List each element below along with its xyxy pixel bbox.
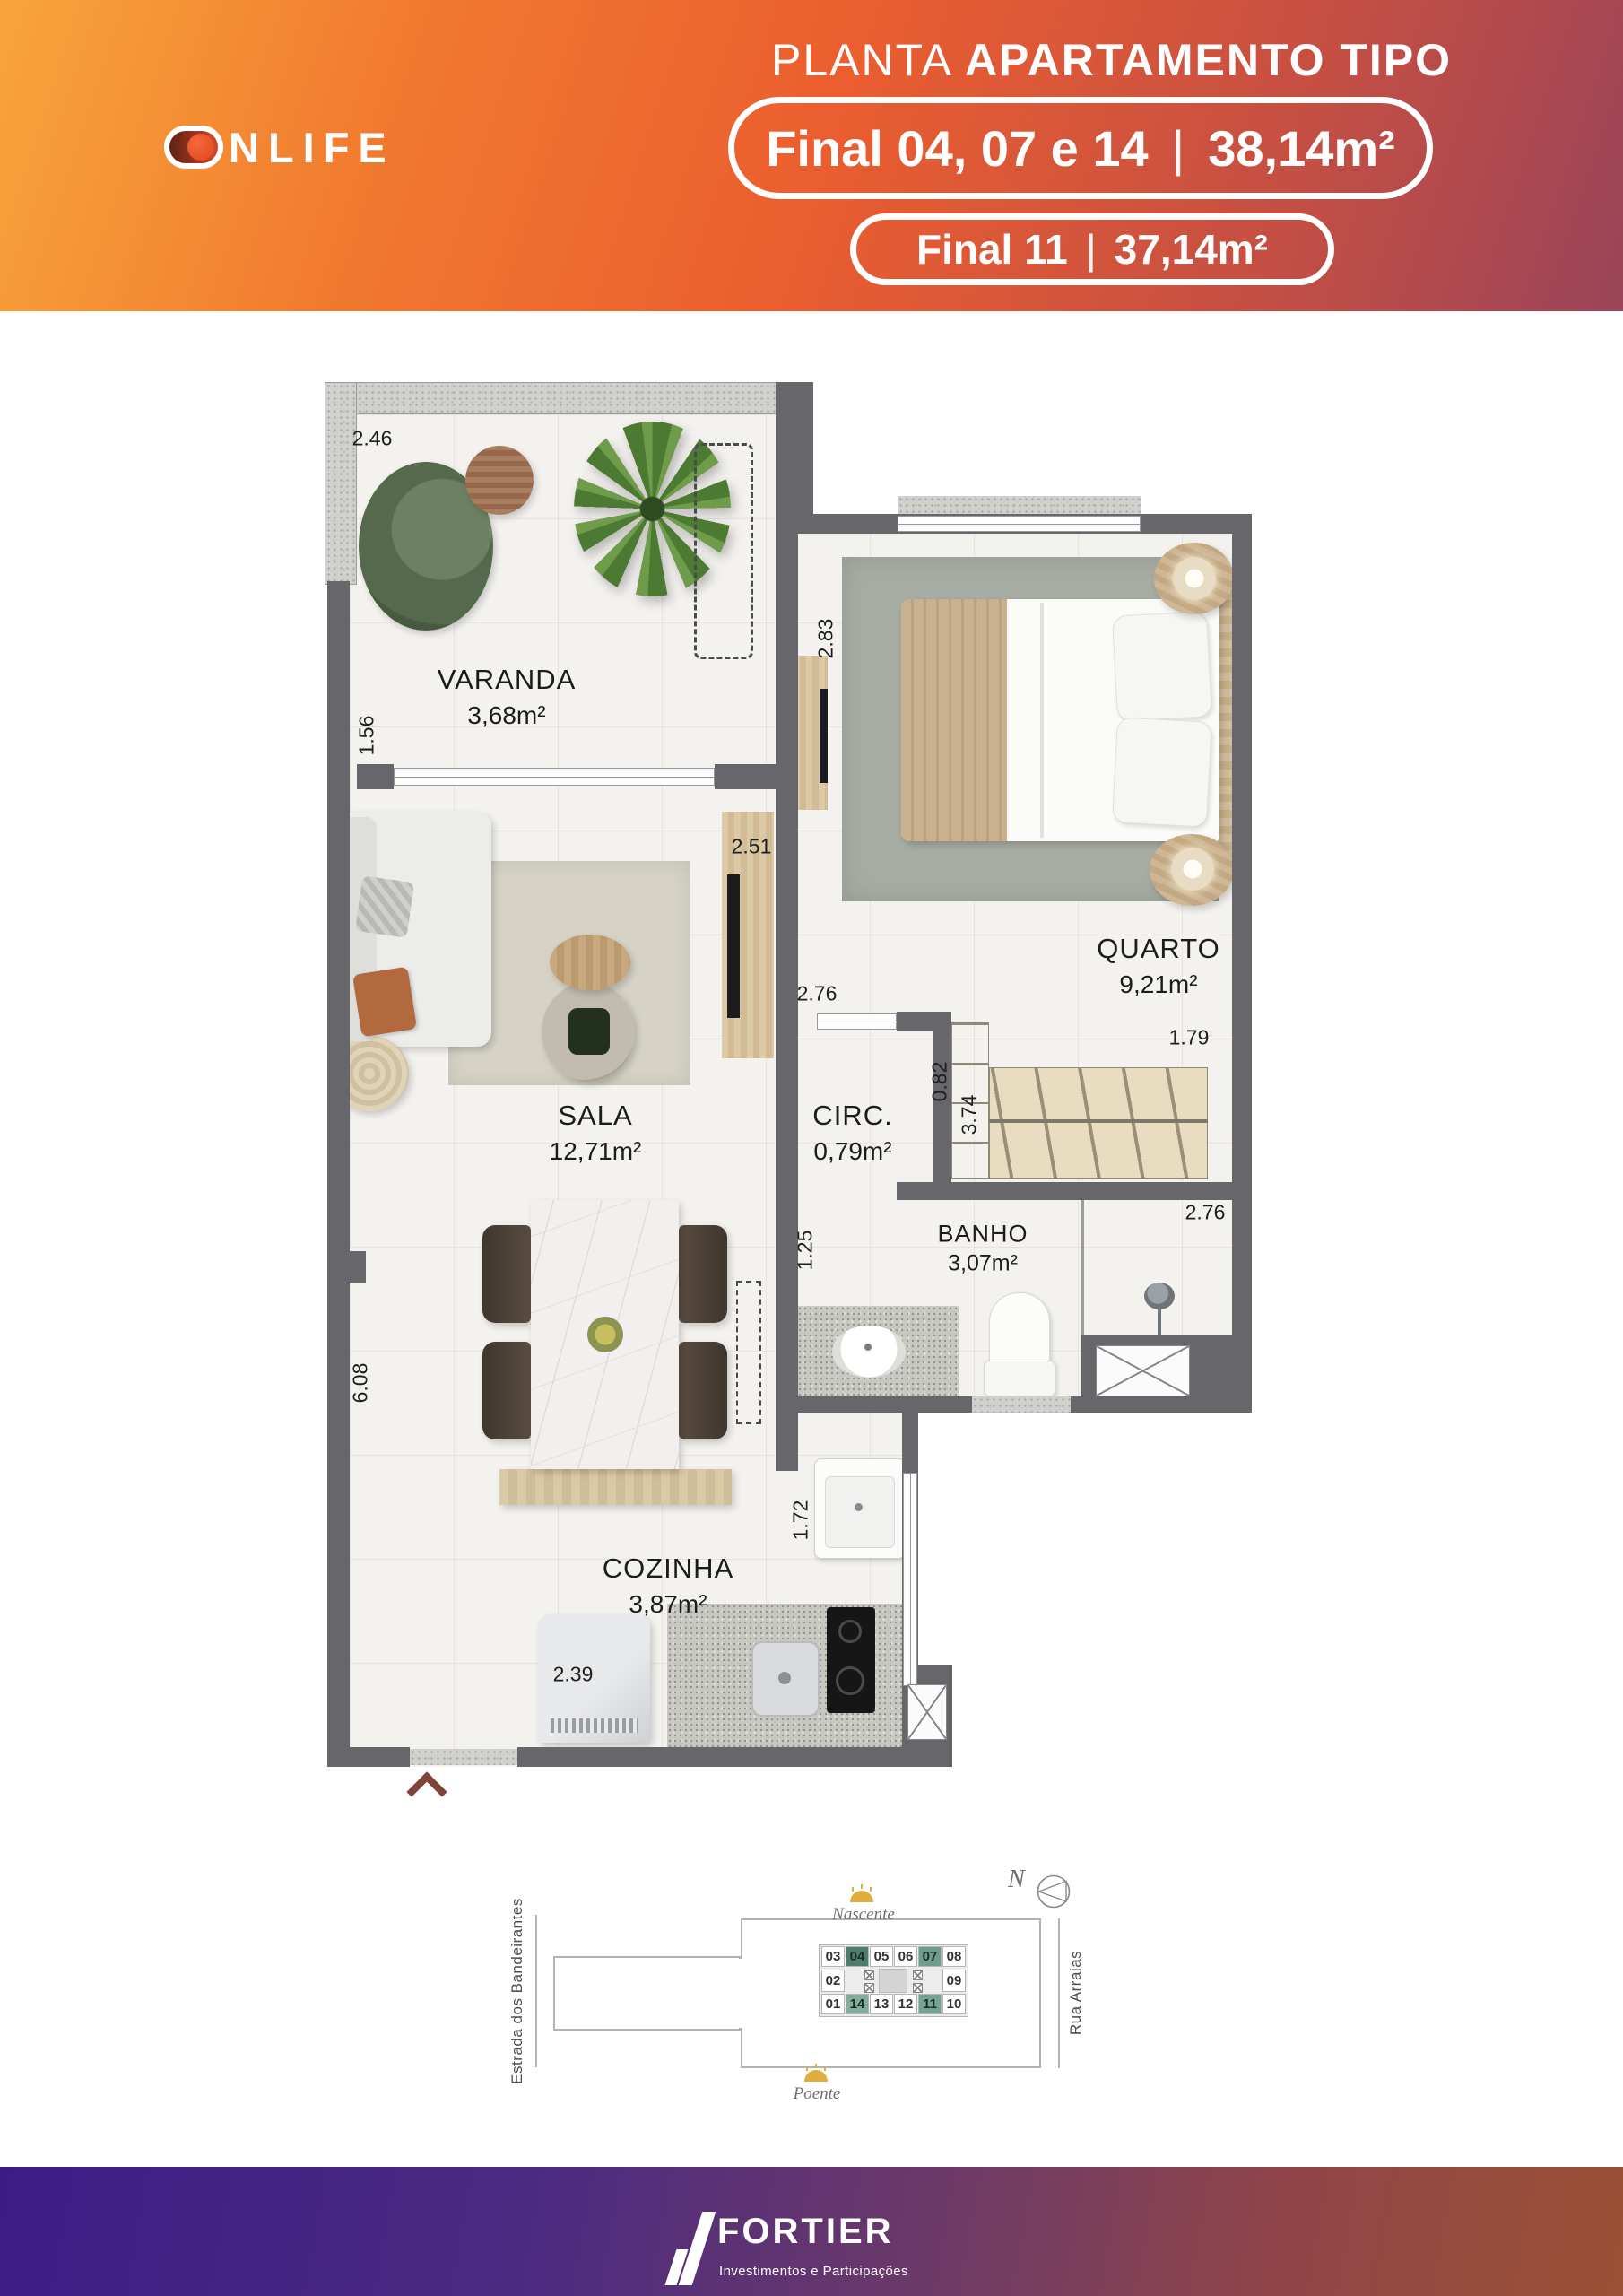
wall-wardrobe-left: [933, 1030, 951, 1184]
sun-icon-poente: [804, 2070, 828, 2082]
wall-banho-top: [897, 1182, 1252, 1200]
street-label-left: Estrada dos Bandeirantes: [508, 1898, 526, 2084]
compass-icon: [1035, 1873, 1072, 1910]
shower-head-stem: [1158, 1308, 1161, 1335]
varanda-parapet-top: [325, 382, 813, 414]
quarto-tv: [820, 689, 828, 783]
title-bold: APARTAMENTO TIPO: [965, 35, 1452, 85]
onlife-logo: NLIFE: [164, 122, 395, 172]
title-regular: PLANTA: [771, 35, 950, 85]
shower-head-icon: [1144, 1283, 1175, 1309]
unit-10: 10: [942, 1994, 966, 2014]
unit-01: 01: [821, 1994, 845, 2014]
dim-closet-height: 3.74: [958, 1095, 982, 1135]
dim-quarto-height: 2.83: [814, 619, 838, 659]
footer-banner: FORTIER Investimentos e Participações: [0, 2167, 1623, 2296]
cooktop-burner: [838, 1620, 862, 1643]
outside-area: [918, 1413, 1252, 1767]
page-title: PLANTA APARTAMENTO TIPO: [771, 34, 1390, 86]
service-window: [903, 1473, 917, 1686]
fridge-vent: [551, 1718, 638, 1733]
sideboard: [499, 1469, 732, 1505]
site-lot-junction: [738, 1959, 743, 2028]
wall-left-pilaster: [350, 1251, 366, 1283]
room-label-banho: BANHO 3,07m²: [937, 1221, 1028, 1277]
dim-quarto-width: 1.79: [1169, 1026, 1210, 1050]
dining-chair: [679, 1225, 727, 1323]
unit-13: 13: [870, 1994, 893, 2014]
dim-cozinha-width: 2.39: [553, 1663, 594, 1687]
wall-varanda-bottom: [715, 764, 776, 789]
core-shaft-box: [913, 1983, 923, 1993]
dim-banho-door: 1.25: [794, 1231, 818, 1271]
core-shaft-box: [913, 1970, 923, 1980]
bed-throw-blanket: [901, 599, 1007, 841]
onlife-logo-text: NLIFE: [229, 126, 395, 169]
varanda-sliding-door: [394, 768, 715, 786]
room-label-varanda: VARANDA 3,68m²: [438, 664, 577, 730]
dim-banho-width: 2.76: [1185, 1201, 1226, 1225]
sala-tv: [727, 874, 740, 1018]
wall-circ-stub: [897, 1012, 951, 1031]
unit-09: 09: [942, 1970, 966, 1992]
lobby-core: [879, 1969, 907, 1993]
dim-tv-wall: 2.51: [732, 835, 772, 859]
dim-varanda-height: 1.56: [355, 716, 379, 756]
header-banner: NLIFE PLANTA APARTAMENTO TIPO Final 04, …: [0, 0, 1623, 311]
entry-door-sill: [410, 1749, 517, 1765]
dim-circ-width: 2.76: [797, 982, 838, 1006]
logo-bar-large: [679, 2212, 716, 2285]
room-label-circ: CIRC. 0,79m²: [812, 1100, 892, 1166]
wall-right: [1232, 514, 1252, 1413]
wall-spine: [776, 514, 798, 1471]
unit-06: 06: [894, 1946, 917, 1967]
kitchen-sink-drain: [778, 1672, 791, 1684]
vanity-basin: [832, 1326, 906, 1378]
dim-varanda-width: 2.46: [352, 427, 393, 451]
sun-icon-nascente: [850, 1891, 873, 1902]
wall-quarto-corner: [776, 382, 813, 526]
bed-pillow: [1112, 611, 1212, 721]
dashed-counter-outline: [736, 1281, 761, 1424]
wall-bottom: [327, 1747, 410, 1767]
badge-divider: |: [1172, 119, 1185, 178]
fortier-tagline: Investimentos e Participações: [719, 2264, 908, 2279]
cooktop-burner: [836, 1666, 864, 1695]
dining-chair: [679, 1342, 727, 1439]
unit-03: 03: [821, 1946, 845, 1967]
compass-north-letter: N: [1008, 1865, 1025, 1894]
dim-service-height: 1.72: [789, 1500, 813, 1541]
varanda-side-table: [465, 446, 534, 515]
badge-area: 38,14m²: [1208, 119, 1395, 178]
coffee-table-tray: [568, 1008, 610, 1055]
badge-final-04-07-14: Final 04, 07 e 14 | 38,14m²: [728, 97, 1433, 199]
laundry-faucet-icon: [855, 1503, 863, 1511]
unit-07: 07: [918, 1946, 942, 1967]
core-shaft-box: [864, 1983, 874, 1993]
wardrobe-rail-bar: [989, 1119, 1208, 1123]
badge-area: 37,14m²: [1115, 225, 1268, 274]
shaft-box: [1096, 1345, 1190, 1396]
unit-04: 04: [846, 1946, 869, 1967]
laundry-tank-basin: [825, 1476, 895, 1548]
dining-chair: [482, 1342, 531, 1439]
wall-left: [327, 581, 350, 1767]
unit-02: 02: [821, 1970, 845, 1992]
fortier-brand: FORTIER: [717, 2212, 894, 2252]
sun-label-nascente: Nascente: [832, 1905, 895, 1925]
unit-08: 08: [942, 1946, 966, 1967]
entry-arrow-icon: [406, 1771, 447, 1812]
room-label-sala: SALA 12,71m²: [550, 1100, 642, 1166]
dining-chair: [482, 1225, 531, 1323]
flyer-page: NLIFE PLANTA APARTAMENTO TIPO Final 04, …: [0, 0, 1623, 2296]
unit-05: 05: [870, 1946, 893, 1967]
building-key-plan: 03 04 05 06 07 08 02 09 01 14 13 12 11 1…: [819, 1944, 968, 2017]
side-table-round: [550, 935, 630, 990]
sofa-cushion-orange: [352, 967, 417, 1038]
badge-label: Final 11: [916, 225, 1068, 274]
toggle-knob-icon: [187, 134, 214, 161]
street-line-right: [1058, 1918, 1060, 2068]
wall-bottom: [517, 1747, 952, 1767]
shaft-box: [907, 1684, 947, 1740]
badge-label: Final 04, 07 e 14: [766, 119, 1148, 178]
core-shaft-box: [864, 1970, 874, 1980]
varanda-dashed-outline: [694, 443, 753, 659]
dim-sala-height: 6.08: [349, 1363, 373, 1404]
wardrobe-hanging-rail: [989, 1067, 1208, 1179]
quarto-door-threshold: [817, 1013, 897, 1030]
quarto-window-ledge: [898, 496, 1141, 514]
unit-11: 11: [918, 1994, 942, 2014]
nightstand-lamp: [1171, 848, 1214, 891]
varanda-parapet-left: [325, 382, 357, 585]
bed-sheet-fold: [1040, 603, 1044, 838]
badge-divider: |: [1086, 225, 1097, 274]
sun-label-poente: Poente: [794, 2084, 841, 2104]
nightstand-lamp: [1173, 557, 1216, 600]
bed-pillow: [1112, 717, 1212, 827]
vanity-faucet-icon: [864, 1344, 872, 1351]
dim-circ-height: 0.82: [928, 1062, 952, 1102]
toilet-bowl: [989, 1292, 1050, 1370]
street-line-left: [535, 1915, 537, 2067]
site-lot-extension: [553, 1956, 741, 2031]
quarto-window: [898, 516, 1141, 532]
street-label-right: Rua Arraias: [1067, 1951, 1085, 2035]
banho-window-sill: [972, 1396, 1071, 1413]
room-label-cozinha: COZINHA 3,87m²: [603, 1552, 734, 1619]
wall-varanda-bottom: [357, 764, 394, 789]
sofa-cushion-patterned: [355, 875, 414, 937]
room-label-quarto: QUARTO 9,21m²: [1097, 933, 1220, 999]
shower-divider: [1081, 1200, 1084, 1335]
table-centerpiece: [587, 1317, 623, 1352]
toilet-tank: [984, 1361, 1055, 1396]
unit-14: 14: [846, 1994, 869, 2014]
badge-final-11: Final 11 | 37,14m²: [850, 213, 1334, 285]
unit-12: 12: [894, 1994, 917, 2014]
onlife-toggle-icon: [164, 126, 223, 169]
